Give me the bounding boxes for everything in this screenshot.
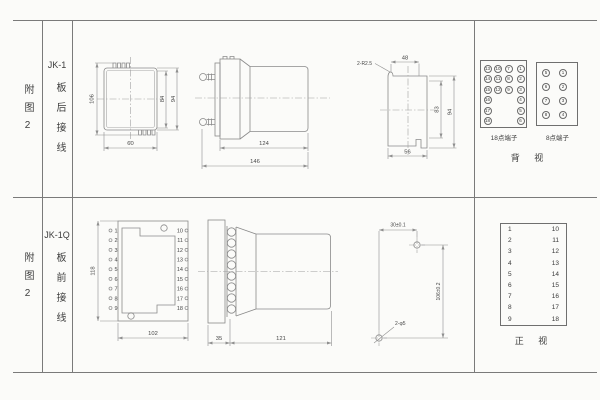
terminal-table-left-number: 4 <box>508 260 512 267</box>
dim-body-length-front: 121 <box>276 336 286 342</box>
terminal-number: 15 <box>177 277 183 283</box>
terminal-table-right-number: 16 <box>552 293 559 300</box>
terminal-dot <box>109 306 112 309</box>
dim-width: 60 <box>127 141 133 147</box>
dim-front-height: 118 <box>91 266 97 275</box>
terminal-dot <box>109 287 112 290</box>
hole-note: 2-φ5 <box>395 321 406 327</box>
terminal-dot <box>185 268 188 271</box>
terminal-circle: 2 <box>559 83 567 91</box>
terminal-circle: 17 <box>484 107 492 115</box>
front-view-terminals: 123456789101112131415161718 <box>109 229 188 312</box>
terminal-number: 12 <box>177 248 183 254</box>
terminal-circle: 11 <box>494 75 502 83</box>
terminal-number: 13 <box>177 258 183 264</box>
terminal-dot <box>185 306 188 309</box>
dim-corner-radius: 2-R2.5 <box>357 61 372 67</box>
terminal-table-left-number: 5 <box>508 271 512 278</box>
table-border-middle <box>13 197 597 198</box>
terminal-block-18: 131071141182151293164175186 <box>480 60 527 128</box>
terminal-number: 8 <box>115 296 118 302</box>
front-view-dimensions: 118 102 <box>91 221 189 341</box>
terminal-number: 7 <box>115 287 118 293</box>
dim-body-length: 124 <box>259 141 269 147</box>
rear-outline-dimensions: 106 84 94 60 <box>90 63 180 151</box>
figure-label-row2: 附图2 <box>20 252 35 307</box>
terminal-circle: 7 <box>542 97 550 105</box>
terminal-block-8: 51627384 <box>536 62 578 126</box>
terminal-table-right-number: 12 <box>552 248 559 255</box>
terminal-dot <box>109 239 112 242</box>
terminal-table-right-number: 11 <box>552 237 559 244</box>
dim-body-height: 94 <box>171 95 177 102</box>
terminal-circle: 6 <box>517 117 525 125</box>
terminal-table-right-number: 10 <box>552 226 559 233</box>
dim-front-width: 102 <box>148 331 158 337</box>
terminal-circle: 1 <box>559 69 567 77</box>
figure-label-row1: 附图2 <box>20 84 35 139</box>
terminal-number: 17 <box>177 296 183 302</box>
model-label-row1: JK-1 <box>42 60 72 70</box>
terminal-dot <box>109 297 112 300</box>
terminal-table-left-number: 8 <box>508 304 512 311</box>
terminal-block-8-label: 8点端子 <box>530 132 585 142</box>
terminal-table-right-number: 14 <box>552 271 559 278</box>
drill-plan-dimensions: 30±0.1 106±0.2 2-φ5 <box>374 223 445 344</box>
terminal-circle: 12 <box>494 86 502 94</box>
terminal-table-right-number: 18 <box>552 316 559 323</box>
terminal-table-row: 110 <box>501 224 566 235</box>
wiring-label-row2: 板前接线 <box>52 252 67 332</box>
terminal-circle: 14 <box>484 75 492 83</box>
terminal-number: 3 <box>115 248 118 254</box>
terminal-circle: 5 <box>542 69 550 77</box>
table-border-top <box>13 20 597 21</box>
panel-cutout-dimensions: 2-R2.5 48 83 94 56 <box>357 56 457 160</box>
table-border-bottom <box>13 372 597 373</box>
terminal-circle: 8 <box>542 111 550 119</box>
terminal-dot <box>185 297 188 300</box>
dim-top-offset: 48 <box>402 56 408 62</box>
dim-hole-spacing-h: 30±0.1 <box>390 223 405 229</box>
terminal-number: 1 <box>115 229 118 235</box>
terminal-table-row: 817 <box>501 302 566 313</box>
terminal-dot <box>109 268 112 271</box>
terminal-dot <box>185 239 188 242</box>
terminal-number: 18 <box>177 306 183 312</box>
rear-outline-shape <box>97 57 164 143</box>
terminal-table-left-number: 7 <box>508 293 512 300</box>
side-view-rear-shape <box>195 57 330 140</box>
terminal-table-right-number: 17 <box>552 304 559 311</box>
side-view-front-drawing: 35 121 <box>195 212 345 352</box>
dim-hole-spacing-v: 106±0.2 <box>436 282 442 300</box>
terminal-circle: 5 <box>517 107 525 115</box>
terminal-circle: 10 <box>494 65 502 73</box>
terminal-circle: 3 <box>559 97 567 105</box>
terminal-block-18-label: 18点端子 <box>474 132 534 142</box>
terminal-circle: 4 <box>517 96 525 104</box>
terminal-table-left-number: 9 <box>508 316 512 323</box>
dim-inner-height: 84 <box>160 95 166 102</box>
front-view-label: 正 视 <box>496 334 572 347</box>
terminal-circle: 13 <box>484 65 492 73</box>
terminal-dot <box>185 277 188 280</box>
terminal-table-row: 211 <box>501 235 566 246</box>
terminal-number: 11 <box>177 238 183 244</box>
terminal-table-row: 716 <box>501 291 566 302</box>
terminal-circle: 16 <box>484 96 492 104</box>
terminal-table-left-number: 1 <box>508 226 512 233</box>
terminal-circle: 4 <box>559 111 567 119</box>
side-view-rear-dimensions: 124 146 <box>202 129 308 169</box>
terminal-circle: 2 <box>517 75 525 83</box>
side-view-front-dimensions: 35 121 <box>208 311 332 346</box>
terminal-circle: 8 <box>505 75 513 83</box>
dim-cutout-width: 56 <box>404 150 410 156</box>
side-view-rear-drawing: 124 146 <box>195 45 345 175</box>
terminal-number: 10 <box>177 229 183 235</box>
table-divider-2 <box>72 20 73 372</box>
terminal-dot <box>109 248 112 251</box>
terminal-table-row: 312 <box>501 246 566 257</box>
terminal-circle: 15 <box>484 86 492 94</box>
terminal-table-row: 918 <box>501 314 566 325</box>
drawing-sheet: 附图2 JK-1 板后接线 附图2 JK-1Q 板前接线 106 84 94 6… <box>0 0 600 400</box>
terminal-dot <box>109 229 112 232</box>
terminal-number: 6 <box>115 277 118 283</box>
terminal-number: 16 <box>177 287 183 293</box>
terminal-table-left-number: 3 <box>508 248 512 255</box>
terminal-number: 5 <box>115 267 118 273</box>
terminal-table-row: 413 <box>501 258 566 269</box>
terminal-table-left-number: 6 <box>508 282 512 289</box>
terminal-dot <box>185 229 188 232</box>
model-label-row2: JK-1Q <box>40 230 74 240</box>
panel-cutout-drawing: 2-R2.5 48 83 94 56 <box>350 50 465 165</box>
terminal-table-row: 514 <box>501 269 566 280</box>
terminal-number: 4 <box>115 258 118 264</box>
table-divider-3 <box>474 20 475 372</box>
terminal-number: 14 <box>177 267 183 273</box>
terminal-table-right-number: 13 <box>552 260 559 267</box>
dim-panel-depth: 35 <box>216 336 222 342</box>
terminal-table-row: 615 <box>501 280 566 291</box>
terminal-circle: 18 <box>484 117 492 125</box>
terminal-circle: 6 <box>542 83 550 91</box>
rear-view-label: 背 视 <box>492 151 568 164</box>
terminal-number: 2 <box>115 238 118 244</box>
terminal-table-right-number: 15 <box>552 282 559 289</box>
terminal-dot <box>185 248 188 251</box>
terminal-dot <box>109 277 112 280</box>
terminal-dot <box>109 258 112 261</box>
side-view-front-shape <box>198 220 338 323</box>
terminal-number: 9 <box>115 306 118 312</box>
dim-overall-length: 146 <box>250 159 260 165</box>
drill-plan-drawing: 30±0.1 106±0.2 2-φ5 <box>360 215 460 350</box>
terminal-dot <box>185 287 188 290</box>
terminal-dot <box>185 258 188 261</box>
dim-overall-height: 106 <box>90 94 96 104</box>
dim-cutout-inner-height: 83 <box>435 106 441 112</box>
terminal-circle: 1 <box>517 65 525 73</box>
terminal-number-table: 110211312413514615716817918 <box>500 223 567 326</box>
dim-cutout-height: 94 <box>448 108 454 115</box>
terminal-circle: 3 <box>517 86 525 94</box>
terminal-circle: 9 <box>505 86 513 94</box>
terminal-table-left-number: 2 <box>508 237 512 244</box>
terminal-circle: 7 <box>505 65 513 73</box>
wiring-label-row1: 板后接线 <box>52 82 67 162</box>
front-view-drawing: 123456789101112131415161718 118 102 <box>85 215 205 350</box>
table-divider-1 <box>42 20 43 372</box>
rear-outline-drawing: 106 84 94 60 <box>85 45 195 160</box>
panel-cutout-shape <box>380 66 435 155</box>
